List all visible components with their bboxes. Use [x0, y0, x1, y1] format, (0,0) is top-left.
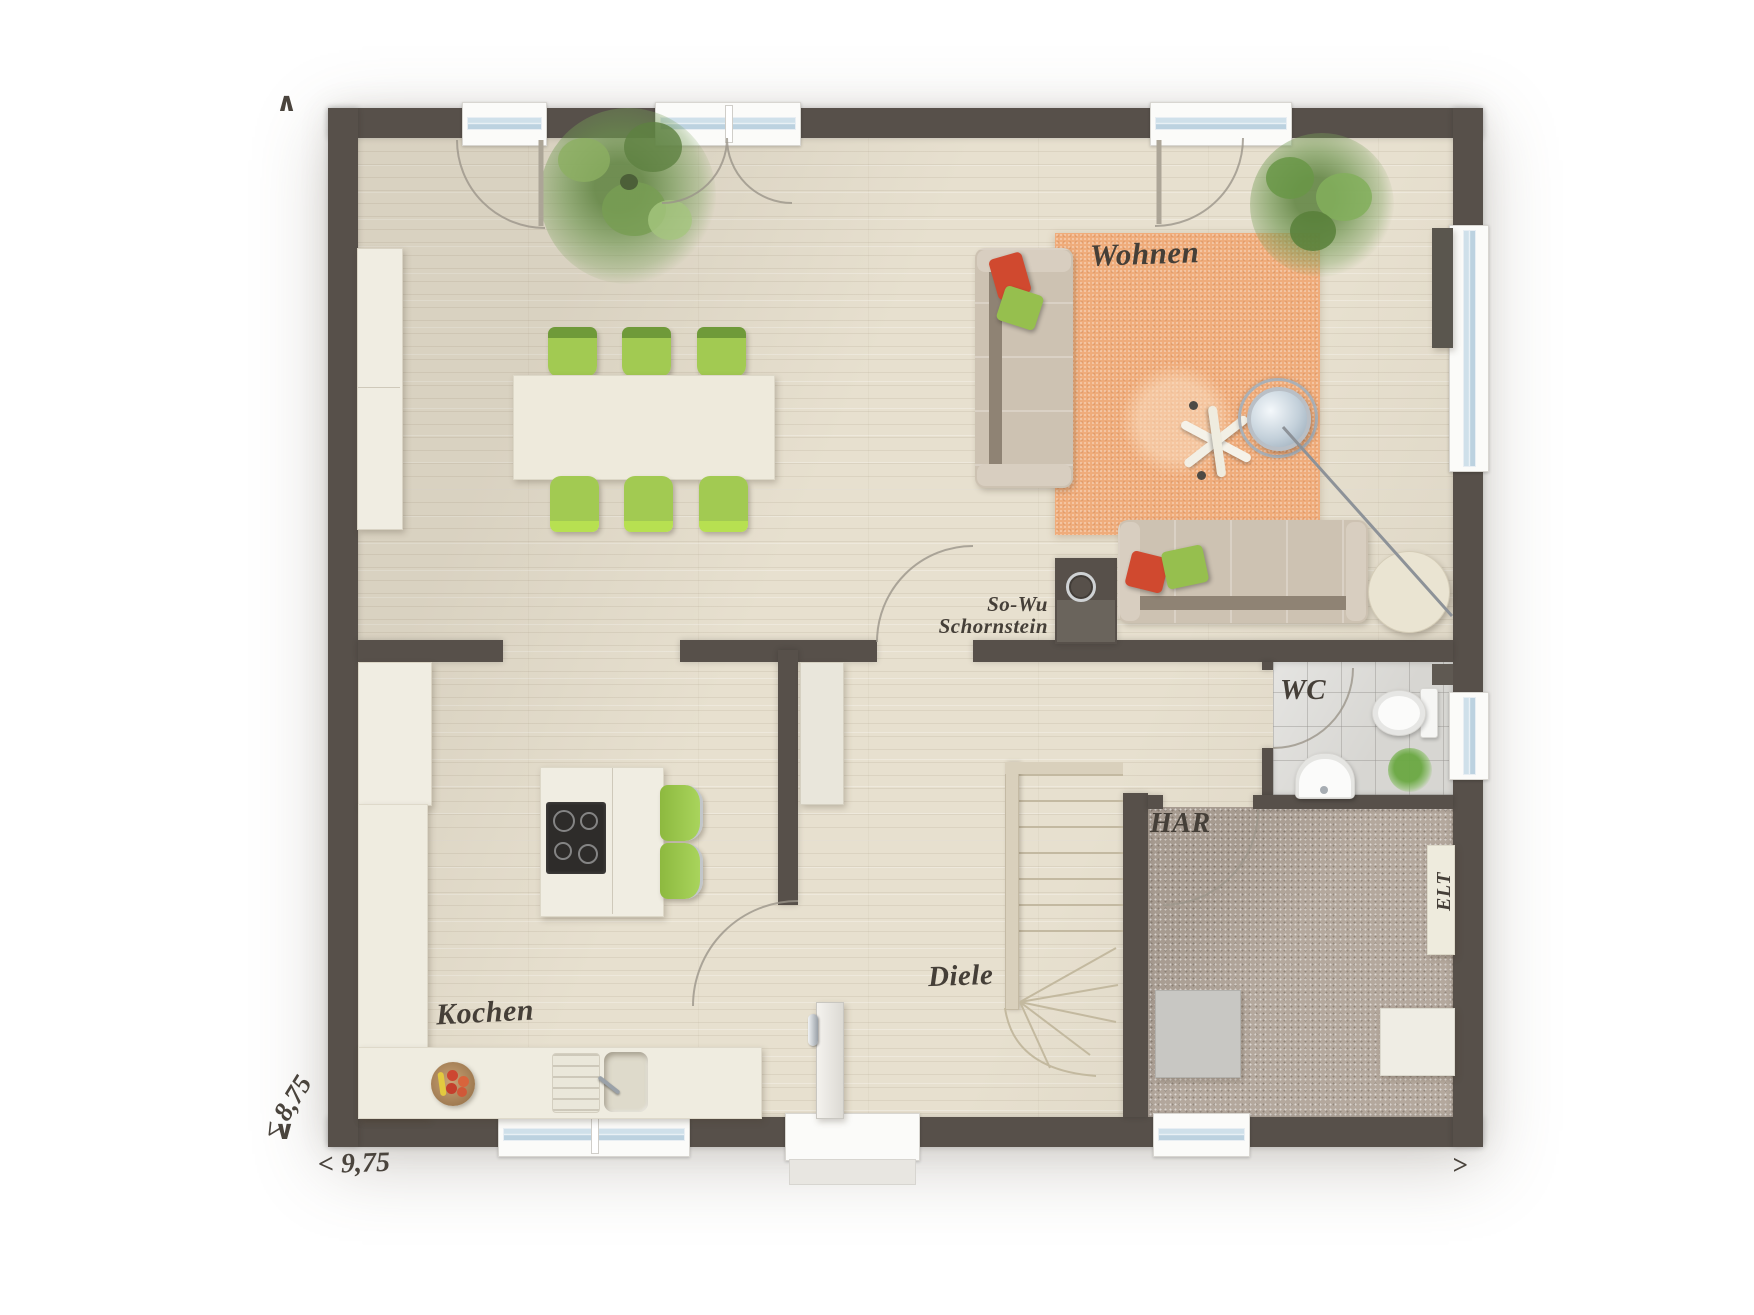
chimney-stove-base: [1057, 600, 1115, 642]
sideboard: [357, 248, 403, 530]
bar-stool-1: [660, 785, 703, 841]
burner: [553, 810, 575, 832]
fruit-apple: [446, 1083, 457, 1094]
sink-basin: [604, 1052, 648, 1112]
kitchen-island-divider: [612, 768, 613, 914]
burner: [580, 812, 598, 830]
window-right-living: [1449, 225, 1489, 472]
window-kitchen-mullion: [591, 1116, 599, 1154]
indoor-plant-right: [1250, 133, 1394, 277]
dining-chair-5: [624, 476, 673, 532]
sink-drainer: [552, 1053, 600, 1113]
stairs-treads: [1017, 774, 1123, 944]
wall-wc-left-bottom: [1262, 748, 1273, 795]
stairs-top-cap: [1005, 762, 1123, 774]
floorplan: Wohnen Kochen Diele WC HAR ELT So-Wu Sch…: [328, 108, 1483, 1147]
dim-arrow-right: >: [1452, 1150, 1467, 1181]
room-label-kitchen: Kochen: [435, 993, 535, 1032]
plant-stem-center: [620, 174, 638, 190]
entry-door-handle: [808, 1014, 818, 1046]
cooktop: [546, 802, 606, 874]
sideboard-divider: [358, 387, 400, 388]
wall-wc-left-top: [1262, 662, 1273, 670]
fruit-banana: [437, 1072, 446, 1097]
chimney-label-line2: Schornstein: [888, 614, 1048, 639]
wc-duct-shaft: [1432, 664, 1453, 685]
plant-leaf: [1266, 157, 1314, 199]
wall-left: [328, 108, 358, 1147]
side-table-round: [1368, 551, 1450, 633]
plant-leaf: [558, 138, 610, 182]
dining-chair-1: [548, 327, 597, 377]
room-label-elt: ELT: [1433, 872, 1456, 911]
window-right-wc-glass: [1463, 697, 1476, 775]
plant-leaf: [648, 200, 692, 240]
window-top-1: [462, 102, 547, 146]
window-top-2-glass: [1155, 117, 1287, 130]
room-label-wc: WC: [1280, 674, 1326, 707]
wall-wc-har-a: [1148, 795, 1163, 809]
dining-chair-4: [550, 476, 599, 532]
dim-arrow-down: ∨: [274, 1116, 295, 1146]
sofa-vertical-armrest-bottom: [977, 464, 1071, 486]
dining-chair-3: [697, 327, 746, 377]
har-appliance-white: [1380, 1008, 1455, 1076]
hall-cabinet: [800, 662, 844, 805]
fruit-apple: [447, 1070, 458, 1081]
floor-lamp-bulb: [1247, 387, 1311, 451]
fruit-bowl: [431, 1062, 475, 1106]
entry-door-step: [789, 1159, 916, 1185]
indoor-plant-large: [540, 108, 716, 284]
room-label-hall: Diele: [927, 959, 993, 994]
dim-arrow-up: ∧: [276, 88, 297, 118]
window-top-2: [1150, 102, 1292, 146]
entry-door-leaf: [816, 1002, 844, 1119]
burner: [554, 842, 572, 860]
room-label-har: HAR: [1150, 808, 1211, 840]
fruit-apple: [457, 1087, 467, 1097]
wall-living-wc-c: [973, 640, 1453, 662]
wall-living-kitchen-a: [358, 640, 503, 662]
toilet-bowl: [1372, 690, 1426, 736]
floorplan-canvas: Wohnen Kochen Diele WC HAR ELT So-Wu Sch…: [0, 0, 1754, 1315]
entry-door-threshold: [785, 1113, 920, 1161]
burner: [578, 844, 598, 864]
bar-stool-2: [660, 843, 703, 899]
sofa-horizontal-armrest-right: [1346, 522, 1366, 621]
wc-sink-tap: [1320, 786, 1328, 794]
dining-chair-6: [699, 476, 748, 532]
dining-table: [513, 375, 775, 480]
french-door-mullion: [725, 105, 733, 143]
har-appliance-gray: [1155, 990, 1241, 1078]
dim-width-label: < 9,75: [317, 1147, 390, 1181]
kitchen-tall-cabinet: [358, 662, 432, 806]
plant-leaf: [1290, 211, 1336, 251]
stove-ring-icon: [1066, 572, 1096, 602]
room-label-living: Wohnen: [1089, 234, 1199, 274]
wall-hall-har: [1123, 793, 1148, 1117]
stairs-stringer-left: [1005, 762, 1019, 1010]
dining-chair-2: [622, 327, 671, 377]
window-top-1-glass: [467, 117, 542, 130]
window-right-living-glass: [1463, 230, 1476, 467]
fruit-apple: [458, 1076, 469, 1087]
coffee-table-knob: [1197, 471, 1206, 480]
window-kitchen: [498, 1113, 690, 1157]
coffee-table-knob: [1189, 401, 1198, 410]
window-right-wc: [1449, 692, 1489, 780]
wall-kitchen-hall: [778, 650, 798, 905]
window-har: [1153, 1113, 1250, 1157]
sofa-horizontal-backrest: [1122, 596, 1364, 610]
tv-lowboard: [1432, 228, 1453, 348]
window-har-glass: [1158, 1128, 1245, 1141]
plant-leaf: [624, 122, 682, 172]
wc-plant: [1388, 748, 1432, 792]
